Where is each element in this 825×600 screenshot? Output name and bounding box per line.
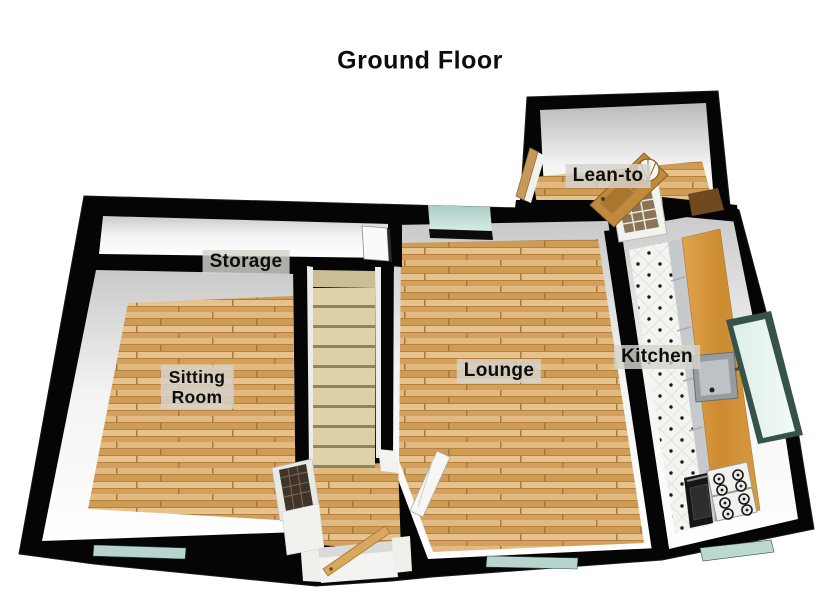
storage-door — [362, 226, 392, 262]
lounge-top-window — [428, 205, 492, 231]
lounge-bottom-window — [486, 556, 578, 569]
sitting-room-label-line1: Sitting — [169, 367, 226, 387]
stairs-landing — [313, 270, 375, 288]
floorplan-drawing — [0, 0, 825, 600]
room-label-lounge: Lounge — [457, 359, 541, 383]
stairs-wall-cap-right — [378, 449, 399, 473]
room-label-kitchen: Kitchen — [614, 345, 700, 369]
stairs-right-wall — [379, 263, 393, 458]
room-label-sitting-room: SittingRoom — [161, 365, 234, 409]
room-label-storage: Storage — [203, 250, 290, 274]
page-title: Ground Floor — [337, 47, 503, 76]
floorplan-canvas: Ground Floor Storage Lean-to SittingRoom… — [0, 0, 825, 600]
entrance-wall-cap-right — [392, 536, 412, 573]
sitting-room-label-line2: Room — [172, 387, 223, 407]
stairs-steps — [313, 288, 375, 468]
room-label-lean-to: Lean-to — [566, 164, 651, 188]
